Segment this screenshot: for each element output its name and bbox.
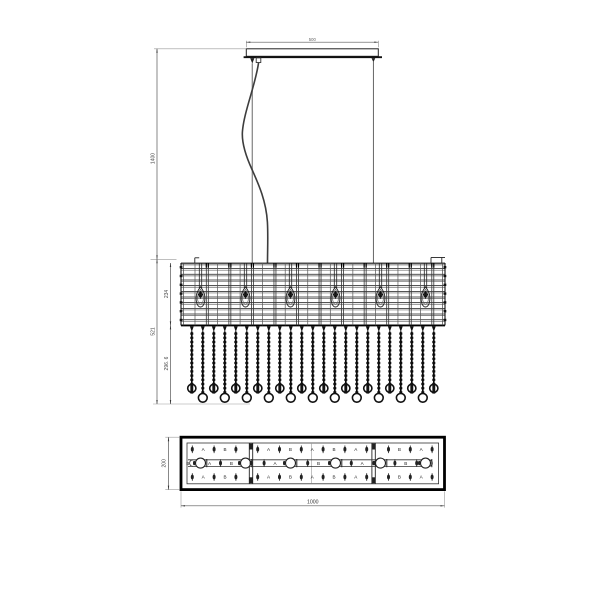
svg-text:B: B: [289, 447, 292, 452]
svg-text:B: B: [223, 447, 226, 452]
svg-text:B: B: [398, 447, 401, 452]
svg-text:B: B: [230, 461, 233, 466]
svg-text:B: B: [223, 475, 226, 480]
svg-text:B: B: [404, 461, 407, 466]
svg-text:1000: 1000: [307, 499, 319, 505]
svg-text:296. 6: 296. 6: [164, 356, 170, 370]
svg-text:B: B: [332, 447, 335, 452]
svg-text:1400: 1400: [151, 153, 157, 164]
svg-text:B: B: [186, 461, 189, 466]
svg-text:521: 521: [151, 327, 157, 336]
svg-text:B: B: [289, 475, 292, 480]
svg-text:200: 200: [162, 459, 168, 468]
svg-text:234: 234: [164, 290, 170, 299]
svg-text:B: B: [317, 461, 320, 466]
svg-text:B: B: [398, 475, 401, 480]
svg-text:B: B: [332, 475, 335, 480]
svg-text:500: 500: [309, 37, 317, 42]
